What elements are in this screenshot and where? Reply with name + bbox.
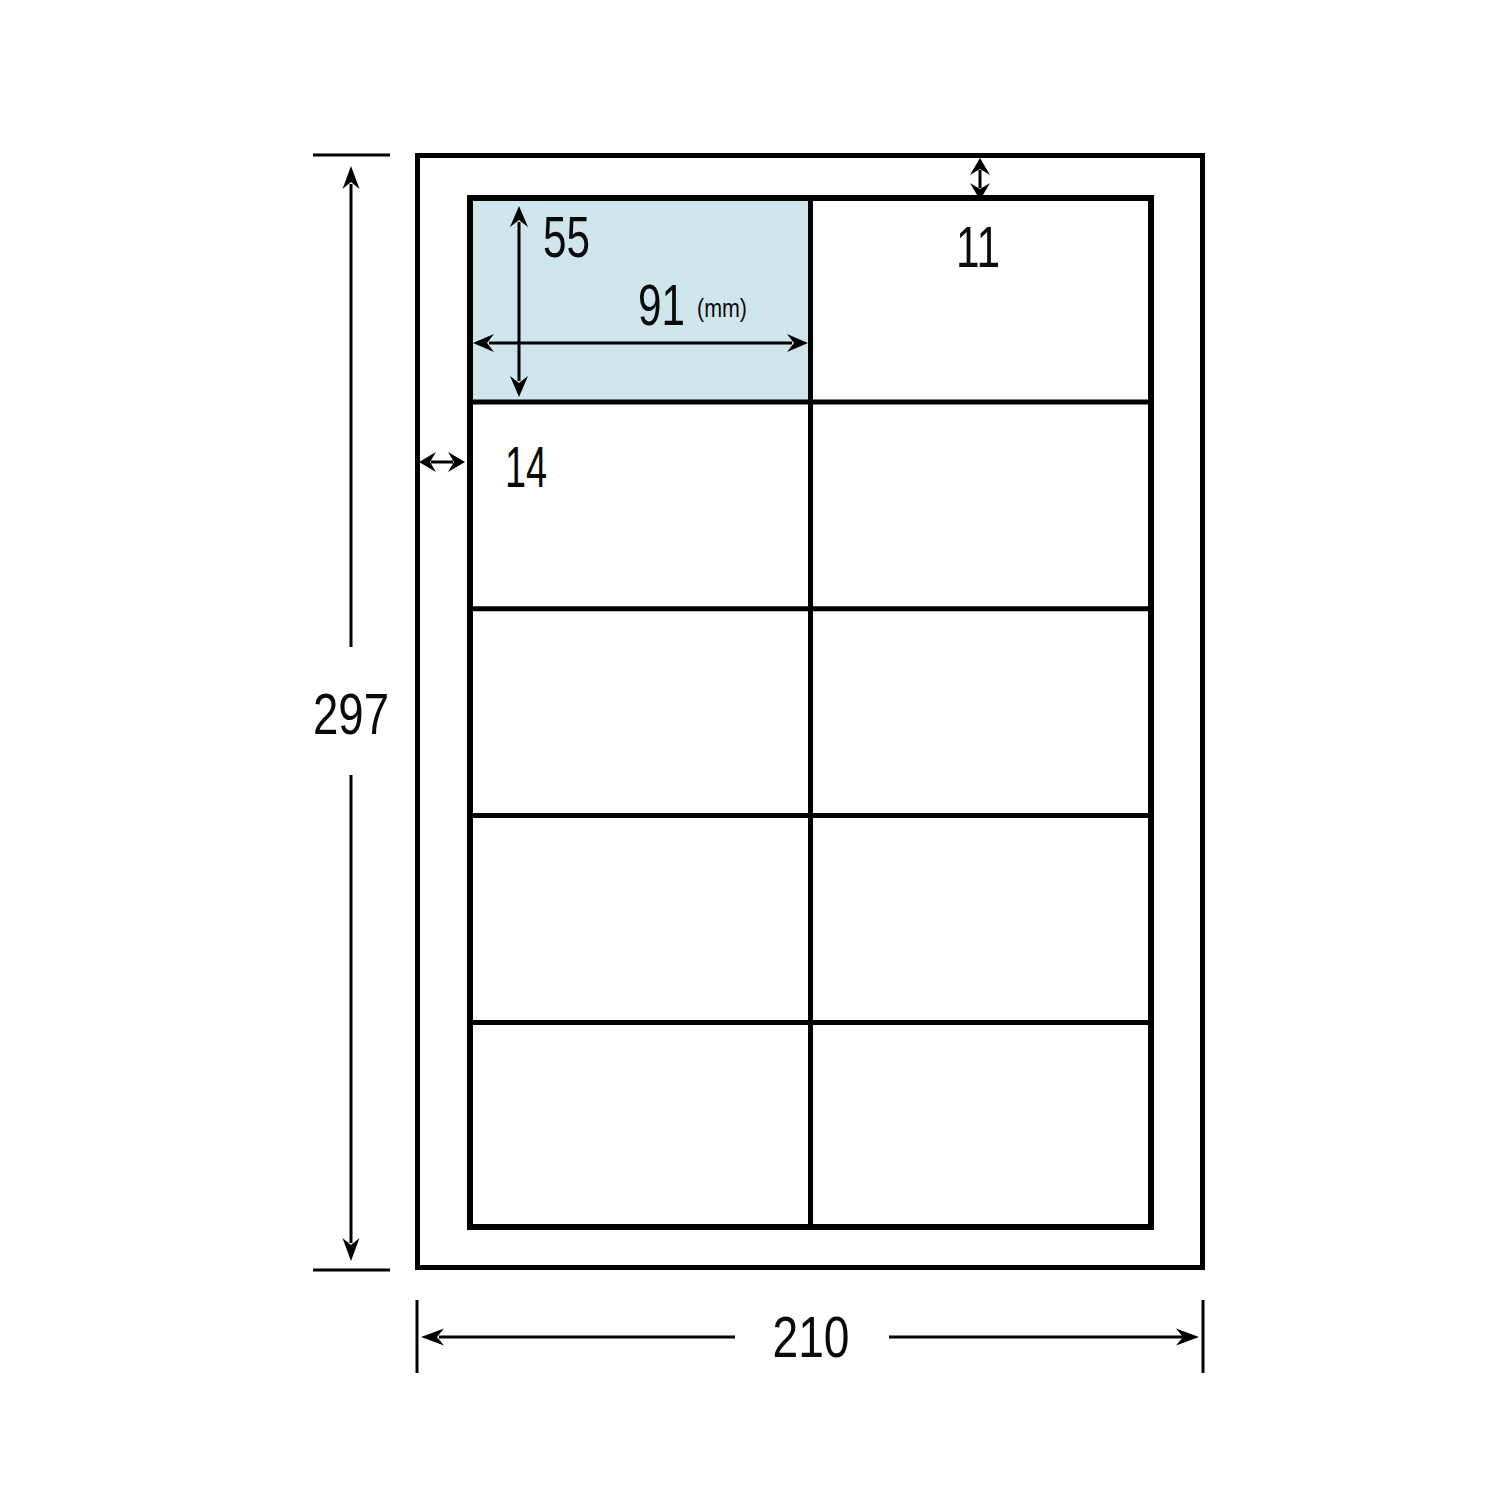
label-sheet-diagram: 297 210 55 91 (mm) [0,0,1500,1500]
dim-unit-label: (mm) [697,294,747,322]
dim-label-left-margin: 14 [505,434,547,499]
dim-sheet-height: 297 [313,155,390,1270]
dim-label-top-margin: 11 [956,214,1000,279]
dim-label-label-width: 91 [638,272,685,337]
dim-label-sheet-height: 297 [313,681,389,746]
diagram-canvas: 297 210 55 91 (mm) [0,0,1500,1500]
dim-label-sheet-width: 210 [773,1304,850,1369]
dim-label-label-height: 55 [543,204,590,269]
dim-sheet-width: 210 [417,1300,1203,1373]
